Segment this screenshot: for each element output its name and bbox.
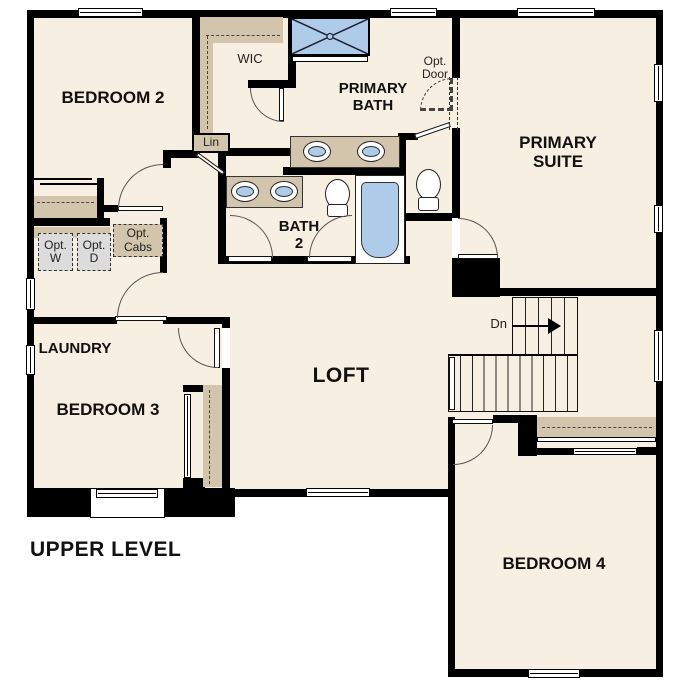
wall-exterior-left <box>27 10 34 517</box>
shower-curb <box>292 56 368 62</box>
wall-wic-bottom <box>248 80 296 88</box>
window-bedroom4-bottom <box>528 669 580 678</box>
linen-label: Lin <box>203 136 219 149</box>
wall-bedroom2-closet-side <box>97 178 104 218</box>
shelf-dash-bedroom2-closet <box>37 202 94 203</box>
sink-bath2-2 <box>270 181 298 202</box>
shower-glass-icon <box>292 19 368 54</box>
tub <box>361 182 399 258</box>
wall-bedroom4-closet-stub-right <box>637 447 656 455</box>
shelf-dash-bedroom3-closet <box>209 390 210 484</box>
wall-primarysuite-bottom <box>500 288 656 296</box>
slider-bedroom4-closet <box>573 448 637 455</box>
window-primarybath-top <box>390 8 437 17</box>
sink-basin <box>308 146 326 157</box>
window-laundry-left <box>26 278 35 310</box>
wall-block-suite-corner <box>452 258 500 297</box>
shelf-bedroom2-closet <box>34 196 97 218</box>
shelf-dash-bedroom4-closet <box>542 427 652 428</box>
optional-dryer: Opt.D <box>77 233 111 271</box>
stairs-direction-arrow-shaft <box>512 325 550 327</box>
optional-washer-label: Opt.W <box>44 239 67 265</box>
optional-cabinets: Opt.Cabs <box>113 224 163 257</box>
wall-toilet-room-bottom <box>398 213 460 221</box>
room-label-primary-suite: PRIMARYSUITE <box>496 133 620 171</box>
wall-primarysuite-west-lower <box>452 128 460 220</box>
shelf-dash-wic-left <box>207 36 208 129</box>
shelf-wic-top <box>200 17 283 43</box>
room-label-loft: LOFT <box>301 364 381 388</box>
sink-primary-1 <box>303 141 331 162</box>
window-bedroom2-top <box>78 8 143 17</box>
stairs-direction-arrow-head <box>548 318 561 334</box>
wall-bedroom3-north <box>163 317 230 324</box>
stairs-run-divider <box>448 354 578 356</box>
sink-bath2-1 <box>231 181 259 202</box>
optional-washer: Opt.W <box>38 233 73 271</box>
slider-bedroom2-closet-a <box>34 178 92 180</box>
shower <box>290 17 370 56</box>
wall-bath2-left <box>218 148 226 264</box>
slider-bedroom2-closet-b <box>40 183 97 185</box>
wall-laundry-bottom <box>27 317 117 324</box>
wall-block-bedroom4-closet <box>518 415 537 456</box>
sink-basin <box>275 186 293 197</box>
toilet-primary-tank <box>418 197 439 211</box>
room-label-wic: WIC <box>225 52 275 66</box>
wall-bedroom2-wic <box>192 10 200 152</box>
room-label-bedroom2: BEDROOM 2 <box>33 88 193 107</box>
window-stair-landing-right <box>654 330 663 382</box>
stairs-handrail <box>449 357 455 410</box>
shelf-bedroom3-closet <box>203 385 222 487</box>
wall-bedroom4-closet-stub-left <box>537 448 573 455</box>
optional-dryer-label: Opt.D <box>83 239 106 265</box>
door-leaf-bedroom4 <box>452 419 493 424</box>
window-primarysuite-right-2 <box>654 205 663 233</box>
room-label-bath2: BATH2 <box>269 219 329 253</box>
sink-basin <box>362 146 380 157</box>
window-primarysuite-right-1 <box>654 64 663 102</box>
window-bedroom3-bay-sash <box>96 489 158 498</box>
door-opening-bedroom3 <box>222 328 230 368</box>
sink-primary-2 <box>357 141 385 162</box>
wall-bath2-top <box>226 148 292 156</box>
optional-door-label: Opt.Door <box>408 55 462 81</box>
window-primarysuite-top <box>517 8 595 17</box>
stairs-lower-run <box>448 355 578 412</box>
shelf-edge-bedroom4-closet <box>537 437 656 442</box>
wall-laundry-top <box>27 218 110 226</box>
room-label-laundry: LAUNDRY <box>29 341 121 358</box>
room-label-bedroom3: BEDROOM 3 <box>28 400 188 419</box>
window-loft-bottom <box>306 488 370 497</box>
linen-closet: Lin <box>192 133 230 153</box>
stairs-direction-label: Dn <box>480 317 507 331</box>
sink-basin <box>236 186 254 197</box>
wall-bedroom4-top-stub <box>493 415 518 423</box>
shelf-dash-wic-top <box>206 35 280 36</box>
optional-cabinets-label: Opt.Cabs <box>124 227 152 253</box>
floor-plan: Lin Opt.W Opt.D Opt.Cabs <box>0 0 687 687</box>
wall-primary-vanity-bottom <box>283 167 406 175</box>
room-label-bedroom4: BEDROOM 4 <box>474 554 634 573</box>
toilet-primary-bowl <box>416 169 441 200</box>
wall-hall-stub <box>163 150 171 168</box>
plan-title: UPPER LEVEL <box>30 538 250 562</box>
room-label-primary-bath: PRIMARYBATH <box>323 81 423 115</box>
wall-bedroom3-closet-bottom <box>183 478 205 488</box>
